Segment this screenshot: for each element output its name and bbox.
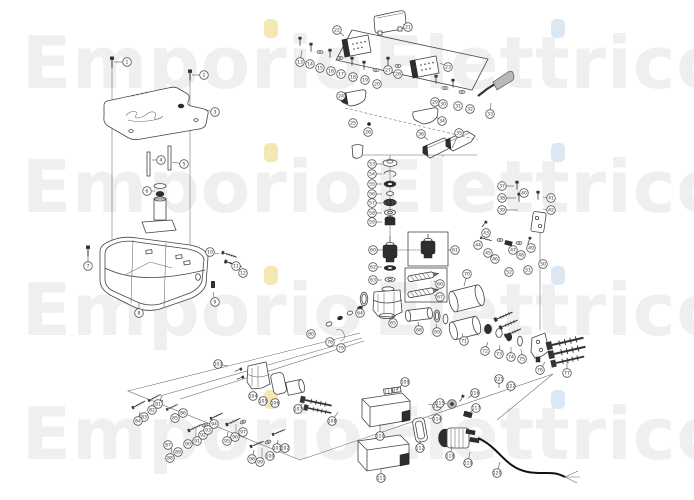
svg-text:32: 32 — [467, 107, 473, 113]
svg-text:34: 34 — [439, 119, 445, 125]
svg-text:90: 90 — [185, 442, 191, 448]
part-callout: 25 — [349, 119, 358, 128]
svg-text:50: 50 — [540, 262, 546, 268]
svg-text:11: 11 — [233, 264, 239, 270]
svg-text:33: 33 — [487, 112, 493, 118]
svg-text:76: 76 — [537, 368, 543, 374]
svg-text:116: 116 — [471, 391, 480, 397]
part-callout: 99 — [256, 458, 265, 467]
pump-body — [373, 287, 402, 319]
svg-text:42: 42 — [548, 208, 554, 214]
svg-text:109: 109 — [401, 380, 410, 386]
svg-text:57: 57 — [369, 201, 375, 207]
watermark-word: Emporio — [22, 392, 364, 476]
svg-text:66: 66 — [437, 282, 443, 288]
svg-text:71: 71 — [461, 339, 467, 345]
svg-text:60: 60 — [370, 248, 376, 254]
part-callout: 40 — [520, 189, 529, 198]
svg-text:79: 79 — [338, 346, 344, 352]
part-callout: 104 — [249, 392, 258, 401]
side-panel — [358, 435, 409, 471]
svg-text:48: 48 — [518, 253, 524, 259]
svg-text:39: 39 — [499, 208, 505, 214]
part-callout: 43 — [482, 229, 491, 238]
svg-text:27: 27 — [385, 68, 391, 74]
watermark-i-dot-blue — [551, 19, 565, 38]
svg-text:75: 75 — [519, 357, 525, 363]
part-callout: 14 — [306, 60, 315, 69]
svg-text:63: 63 — [370, 278, 376, 284]
svg-text:68: 68 — [416, 328, 422, 334]
part-callout: 82 — [148, 406, 157, 415]
svg-text:38: 38 — [499, 196, 505, 202]
part-callout: 18 — [349, 73, 358, 82]
svg-text:91: 91 — [194, 439, 200, 445]
svg-text:65: 65 — [390, 321, 396, 327]
watermark-i-dot-yellow — [264, 143, 278, 162]
part-callout: 16 — [327, 67, 336, 76]
part-callout: 50 — [539, 260, 548, 269]
svg-text:19: 19 — [362, 78, 368, 84]
part-callout: 80 — [307, 330, 316, 339]
svg-text:120: 120 — [493, 471, 502, 477]
svg-text:8: 8 — [138, 311, 141, 317]
part-callout: 90 — [184, 440, 193, 449]
svg-text:69: 69 — [434, 330, 440, 336]
svg-text:21: 21 — [405, 25, 411, 31]
svg-text:84: 84 — [135, 419, 141, 425]
svg-text:12: 12 — [240, 271, 246, 277]
svg-text:5: 5 — [183, 162, 186, 168]
svg-text:110: 110 — [376, 434, 385, 440]
svg-text:54: 54 — [369, 172, 375, 178]
svg-text:99: 99 — [257, 460, 263, 466]
svg-text:73: 73 — [496, 352, 502, 358]
part-callout: 28 — [394, 70, 403, 79]
svg-text:88: 88 — [167, 456, 173, 462]
svg-text:9: 9 — [214, 300, 217, 306]
svg-text:23: 23 — [445, 65, 451, 71]
part-callout: 87 — [164, 441, 173, 450]
part-callout: 12 — [239, 269, 248, 278]
svg-text:6: 6 — [146, 189, 149, 195]
svg-text:119: 119 — [464, 461, 473, 467]
svg-text:77: 77 — [564, 371, 570, 377]
part-callout: 47 — [509, 246, 518, 255]
svg-text:10: 10 — [207, 250, 213, 256]
svg-text:44: 44 — [475, 243, 481, 249]
svg-text:89: 89 — [175, 450, 181, 456]
part-callout: 30 — [439, 100, 448, 109]
watermark-i-dot-yellow — [264, 19, 278, 38]
svg-text:102: 102 — [281, 446, 290, 452]
svg-text:7: 7 — [87, 264, 90, 270]
svg-text:78: 78 — [327, 340, 333, 346]
part-callout: 44 — [474, 241, 483, 250]
svg-text:51: 51 — [525, 268, 531, 274]
part-callout: 79 — [337, 344, 346, 353]
svg-text:13: 13 — [297, 60, 303, 66]
svg-text:95: 95 — [224, 439, 230, 445]
part-callout: 106 — [271, 399, 280, 408]
svg-text:29: 29 — [432, 100, 438, 106]
svg-text:49: 49 — [528, 246, 534, 252]
svg-text:80: 80 — [308, 332, 314, 338]
part-callout: 89 — [174, 448, 183, 457]
svg-text:36: 36 — [418, 132, 424, 138]
svg-text:58: 58 — [369, 211, 375, 217]
svg-text:56: 56 — [369, 192, 375, 198]
parts-diagram-page: EmporioElettricoEmporioElettricoEmporioE… — [0, 0, 694, 500]
part-callout: 94 — [210, 420, 219, 429]
part-callout: 46 — [491, 255, 500, 264]
svg-text:14: 14 — [307, 62, 313, 68]
part-callout: 52 — [505, 268, 514, 277]
svg-text:96: 96 — [232, 435, 238, 441]
part-callout: 31 — [454, 102, 463, 111]
svg-text:17: 17 — [338, 72, 344, 78]
svg-text:98: 98 — [249, 457, 255, 463]
svg-text:1: 1 — [126, 60, 129, 66]
svg-text:30: 30 — [440, 102, 446, 108]
part-callout: 11 — [232, 262, 241, 271]
svg-text:61: 61 — [452, 248, 458, 254]
part-callout: 97 — [239, 428, 248, 437]
watermark-word: Emporio — [22, 145, 364, 229]
svg-text:47: 47 — [510, 248, 516, 254]
side-panel — [362, 393, 410, 427]
part-callout: 17 — [337, 70, 346, 79]
svg-text:15: 15 — [317, 66, 323, 72]
part-callout: 27 — [384, 66, 393, 75]
svg-text:111: 111 — [377, 476, 386, 482]
svg-text:37: 37 — [499, 184, 505, 190]
svg-text:114: 114 — [433, 417, 442, 423]
svg-text:106: 106 — [271, 401, 280, 407]
svg-text:93: 93 — [205, 428, 211, 434]
svg-text:70: 70 — [464, 272, 470, 278]
part-callout: 19 — [361, 76, 370, 85]
svg-text:104: 104 — [249, 394, 258, 400]
svg-text:94: 94 — [211, 422, 217, 428]
part-callout: 45 — [484, 249, 493, 258]
svg-text:82: 82 — [149, 408, 155, 414]
svg-text:2: 2 — [203, 73, 206, 79]
svg-text:31: 31 — [455, 104, 461, 110]
part-callout: 21 — [403, 23, 412, 32]
svg-text:46: 46 — [492, 257, 498, 263]
part-callout: 49 — [527, 244, 536, 253]
part-callout: 85 — [171, 414, 180, 423]
svg-text:20: 20 — [374, 82, 380, 88]
svg-text:107: 107 — [294, 407, 303, 413]
part-callout: 32 — [466, 105, 475, 114]
part-callout: 29 — [431, 98, 440, 107]
svg-text:121: 121 — [495, 377, 504, 383]
svg-text:86: 86 — [180, 411, 186, 417]
svg-text:108: 108 — [328, 419, 337, 425]
watermark-i-dot-blue — [551, 143, 565, 162]
svg-text:53: 53 — [369, 162, 375, 168]
svg-text:43: 43 — [483, 231, 489, 237]
svg-text:3: 3 — [214, 110, 217, 116]
svg-text:45: 45 — [485, 251, 491, 257]
svg-text:74: 74 — [508, 355, 514, 361]
svg-text:40: 40 — [521, 191, 527, 197]
svg-text:105: 105 — [259, 399, 268, 405]
part-callout: 102 — [281, 444, 290, 453]
svg-text:52: 52 — [506, 270, 512, 276]
svg-text:118: 118 — [446, 454, 455, 460]
svg-text:25: 25 — [350, 121, 356, 127]
svg-text:103: 103 — [214, 362, 223, 368]
svg-text:100: 100 — [266, 454, 275, 460]
watermark-i-dot-blue — [551, 390, 565, 409]
svg-text:28: 28 — [395, 72, 401, 78]
part-callout: 86 — [179, 409, 188, 418]
part-callout: 51 — [524, 266, 533, 275]
svg-text:62: 62 — [370, 265, 376, 271]
svg-text:41: 41 — [548, 196, 554, 202]
part-callout: 48 — [517, 251, 526, 260]
part-callout: 100 — [266, 452, 275, 461]
svg-text:81: 81 — [155, 402, 161, 408]
svg-text:112: 112 — [416, 446, 425, 452]
part-callout: 78 — [326, 338, 335, 347]
svg-text:117: 117 — [472, 406, 481, 412]
svg-text:35: 35 — [456, 131, 462, 137]
svg-text:18: 18 — [350, 75, 356, 81]
svg-text:22: 22 — [334, 28, 340, 34]
svg-text:85: 85 — [172, 416, 178, 422]
part-callout: 96 — [231, 433, 240, 442]
part-callout: 26 — [364, 128, 373, 137]
exploded-parts-diagram: EmporioElettricoEmporioElettricoEmporioE… — [0, 0, 694, 500]
watermark-i-dot-yellow — [264, 266, 278, 285]
part-callout: 24 — [337, 92, 346, 101]
svg-text:59: 59 — [369, 220, 375, 226]
svg-text:55: 55 — [369, 182, 375, 188]
svg-text:24: 24 — [338, 94, 344, 100]
svg-text:115: 115 — [436, 401, 445, 407]
svg-text:16: 16 — [328, 69, 334, 75]
part-callout: 15 — [316, 64, 325, 73]
svg-text:87: 87 — [165, 443, 171, 449]
svg-text:64: 64 — [357, 311, 363, 317]
svg-text:122: 122 — [507, 384, 516, 390]
svg-text:26: 26 — [365, 130, 371, 136]
part-callout: 105 — [259, 397, 268, 406]
part-callout: 20 — [373, 80, 382, 89]
svg-text:97: 97 — [240, 430, 246, 436]
svg-text:72: 72 — [482, 349, 488, 355]
svg-text:4: 4 — [160, 158, 163, 164]
svg-text:67: 67 — [437, 295, 443, 301]
watermark-i-dot-blue — [551, 266, 565, 285]
